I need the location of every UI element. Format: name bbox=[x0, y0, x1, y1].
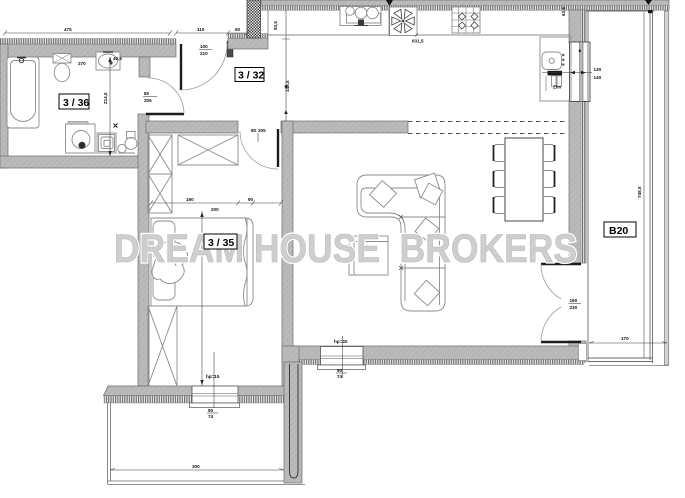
svg-text:475: 475 bbox=[64, 27, 72, 32]
svg-text:Zlm: Zlm bbox=[553, 85, 561, 90]
svg-text:214,5: 214,5 bbox=[103, 92, 108, 104]
svg-text:100: 100 bbox=[200, 44, 208, 49]
svg-text:63,5: 63,5 bbox=[561, 7, 566, 16]
svg-text:3 / 35: 3 / 35 bbox=[208, 237, 234, 249]
svg-text:140: 140 bbox=[594, 75, 602, 80]
svg-text:748,5: 748,5 bbox=[637, 186, 642, 198]
svg-text:205: 205 bbox=[258, 128, 266, 133]
svg-text:40,5: 40,5 bbox=[113, 56, 122, 61]
svg-text:B20: B20 bbox=[609, 225, 628, 237]
svg-text:hp=40: hp=40 bbox=[334, 339, 348, 344]
svg-text:DREAM HOUSE BROKERS: DREAM HOUSE BROKERS bbox=[114, 227, 577, 271]
svg-text:hp=15: hp=15 bbox=[206, 374, 220, 379]
svg-text:80: 80 bbox=[251, 128, 257, 133]
svg-text:205: 205 bbox=[144, 98, 152, 103]
svg-text:190: 190 bbox=[186, 197, 194, 202]
svg-text:200: 200 bbox=[211, 207, 219, 212]
svg-text:74: 74 bbox=[337, 374, 343, 379]
svg-text:180: 180 bbox=[570, 298, 578, 303]
svg-text:80: 80 bbox=[144, 91, 150, 96]
svg-text:210: 210 bbox=[200, 51, 208, 56]
svg-text:631,5: 631,5 bbox=[412, 39, 424, 44]
svg-text:148,5: 148,5 bbox=[285, 80, 290, 92]
svg-text:270: 270 bbox=[78, 61, 86, 66]
svg-text:230: 230 bbox=[570, 305, 578, 310]
svg-text:83,5: 83,5 bbox=[273, 21, 278, 30]
svg-text:3 / 32: 3 / 32 bbox=[238, 70, 264, 82]
svg-text:90: 90 bbox=[208, 408, 214, 413]
svg-text:300: 300 bbox=[192, 464, 200, 469]
svg-text:170: 170 bbox=[621, 336, 629, 341]
svg-text:60: 60 bbox=[235, 27, 241, 32]
svg-text:130: 130 bbox=[594, 67, 602, 72]
svg-text:90: 90 bbox=[248, 197, 254, 202]
svg-text:3 / 36: 3 / 36 bbox=[63, 97, 89, 109]
svg-text:74: 74 bbox=[208, 414, 214, 419]
svg-text:110: 110 bbox=[197, 27, 205, 32]
svg-text:90: 90 bbox=[337, 368, 343, 373]
